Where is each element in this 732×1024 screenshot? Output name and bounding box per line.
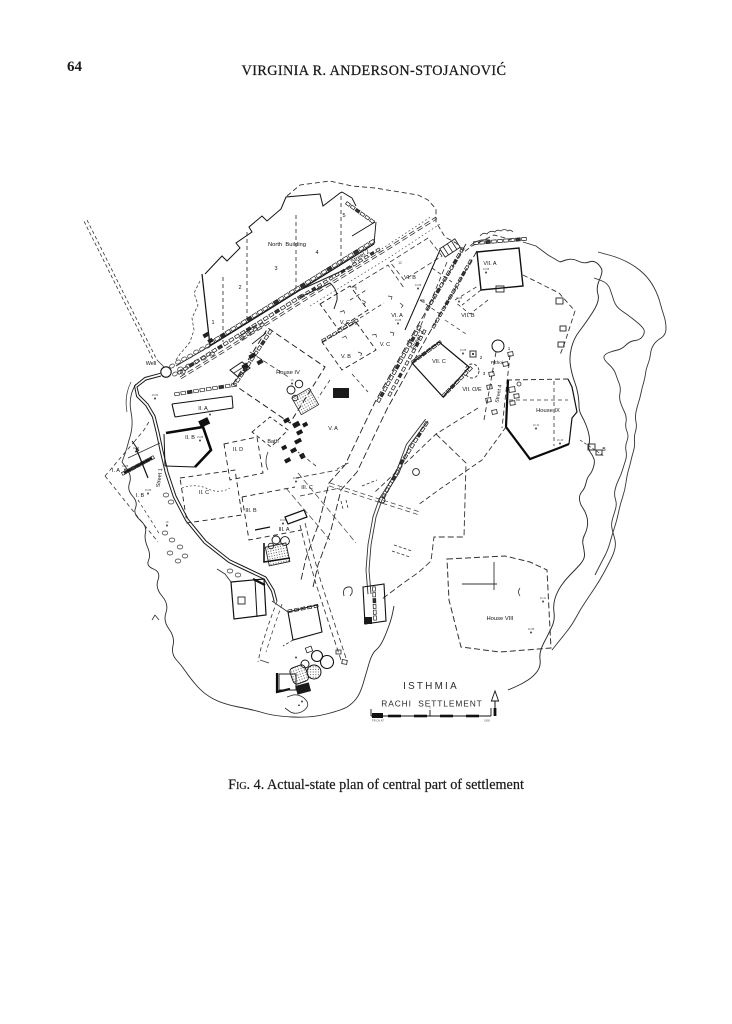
svg-text:III. A: III. A xyxy=(278,527,289,533)
svg-text:16.88: 16.88 xyxy=(197,435,204,439)
svg-text:3: 3 xyxy=(274,266,277,272)
svg-text:House IX: House IX xyxy=(536,408,560,414)
svg-text:North Building: North Building xyxy=(268,242,306,248)
svg-text:16.88: 16.88 xyxy=(207,409,214,413)
svg-text:House IV: House IV xyxy=(276,370,300,376)
svg-text:Well: Well xyxy=(146,361,157,367)
svg-text:16.88: 16.88 xyxy=(395,318,402,322)
svg-text:II. D: II. D xyxy=(233,447,243,453)
svg-text:12: 12 xyxy=(398,261,402,265)
svg-text:16.88: 16.88 xyxy=(460,348,467,352)
svg-text:House VIII: House VIII xyxy=(486,616,513,622)
svg-text:FR.CH.AT: FR.CH.AT xyxy=(372,719,384,723)
svg-text:I. B: I. B xyxy=(136,493,145,499)
svg-text:16.40: 16.40 xyxy=(557,438,564,442)
svg-text:VII. A: VII. A xyxy=(483,261,496,267)
svg-text:Pithoi: Pithoi xyxy=(491,360,503,366)
svg-text:V. B: V. B xyxy=(341,354,351,360)
svg-text:16.88: 16.88 xyxy=(483,267,490,271)
svg-text:VII. O/E: VII. O/E xyxy=(462,387,482,393)
svg-text:VII. C: VII. C xyxy=(432,359,446,365)
svg-text:Bath: Bath xyxy=(267,439,278,445)
svg-text:4: 4 xyxy=(315,250,318,256)
svg-text:V. C: V. C xyxy=(340,320,350,326)
svg-text:RACHI SETTLEMENT: RACHI SETTLEMENT xyxy=(381,699,482,709)
svg-text:V. C: V. C xyxy=(380,342,390,348)
svg-text:16.88: 16.88 xyxy=(456,296,463,300)
svg-text:III. B: III. B xyxy=(245,508,257,514)
svg-text:16.88: 16.88 xyxy=(528,627,535,631)
svg-text:II. C: II. C xyxy=(199,490,209,496)
svg-text:1: 1 xyxy=(508,346,511,351)
svg-text:1: 1 xyxy=(211,320,214,326)
svg-text:VI. A: VI. A xyxy=(391,313,403,319)
svg-text:2: 2 xyxy=(480,355,483,360)
svg-text:3: 3 xyxy=(483,371,486,376)
svg-text:2: 2 xyxy=(238,285,241,291)
svg-text:16.88: 16.88 xyxy=(415,283,422,287)
svg-text:VI. B: VI. B xyxy=(404,275,416,281)
svg-text:VII. B: VII. B xyxy=(461,313,475,319)
svg-text:I. A: I. A xyxy=(112,468,120,474)
svg-text:15: 15 xyxy=(291,378,294,382)
svg-text:16.88: 16.88 xyxy=(122,464,129,468)
svg-text:20.86: 20.86 xyxy=(152,393,159,397)
svg-text:ISTHMIA: ISTHMIA xyxy=(403,681,459,692)
svg-text:16.88: 16.88 xyxy=(145,488,152,492)
svg-text:Street 4: Street 4 xyxy=(494,384,503,403)
svg-text:II. B: II. B xyxy=(185,435,195,441)
svg-text:16.88: 16.88 xyxy=(133,446,140,450)
svg-text:Street 1: Street 1 xyxy=(156,468,165,488)
svg-text:16.10: 16.10 xyxy=(533,423,540,427)
svg-text:16.41: 16.41 xyxy=(540,596,547,600)
svg-text:1993: 1993 xyxy=(484,719,490,723)
svg-text:18: 18 xyxy=(166,520,169,524)
svg-text:III. C: III. C xyxy=(301,485,313,491)
svg-text:5: 5 xyxy=(342,213,345,219)
svg-text:B: B xyxy=(602,447,606,453)
svg-text:V. A: V. A xyxy=(328,426,338,432)
